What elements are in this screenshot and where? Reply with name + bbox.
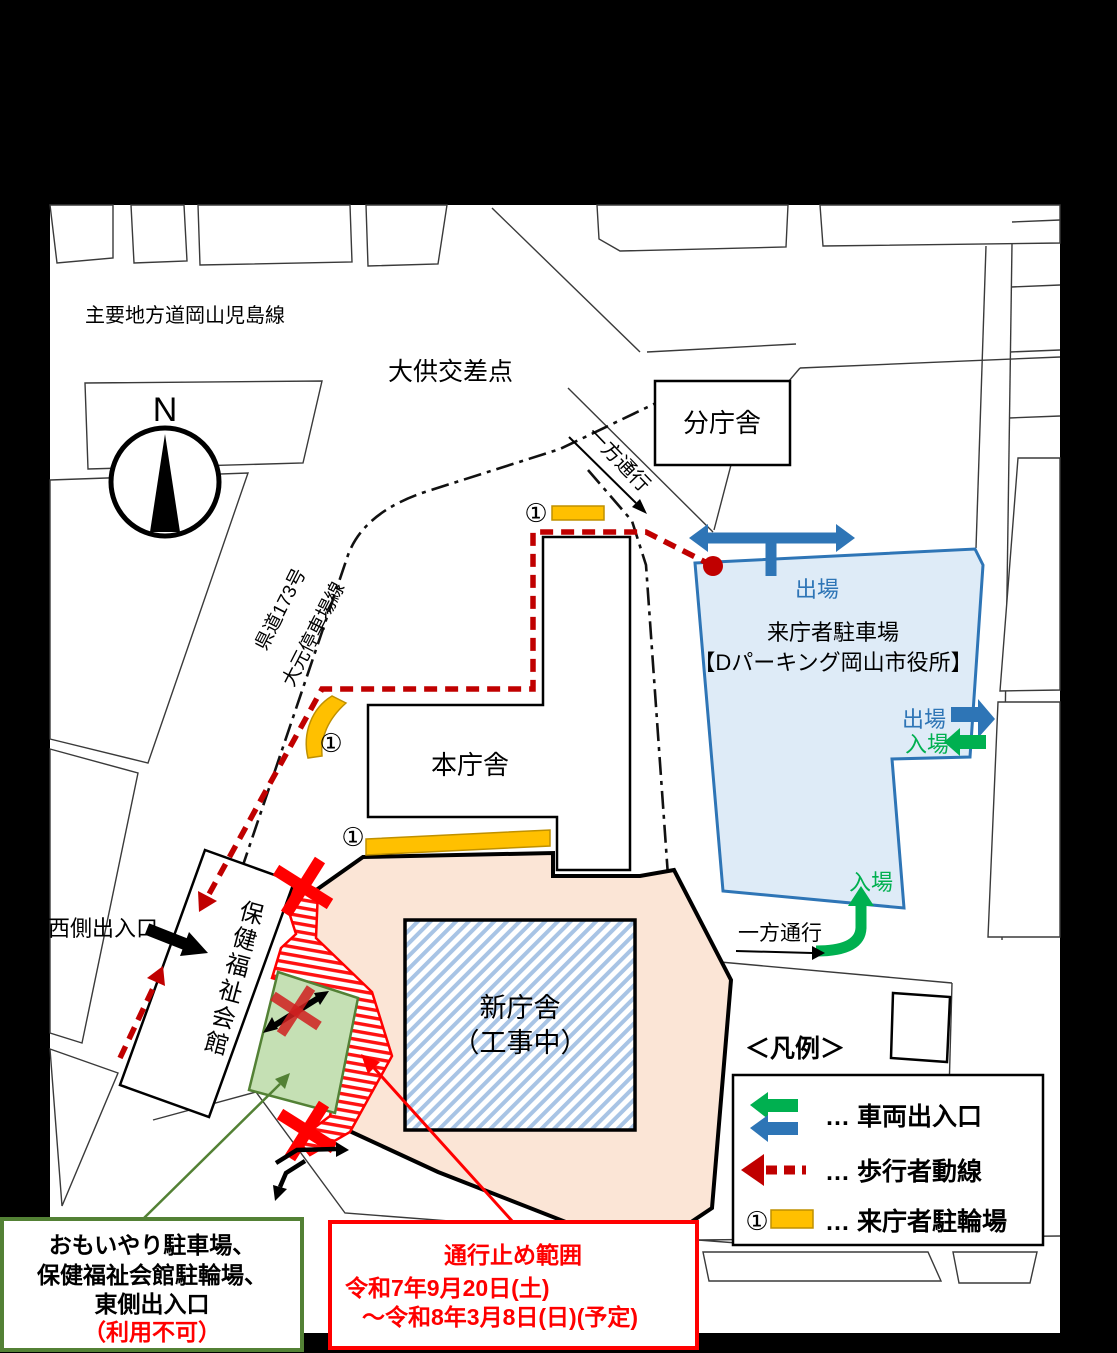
main-road-label: 主要地方道岡山児島線 xyxy=(85,304,285,327)
road-line xyxy=(597,205,788,251)
legend-title: ＜凡例＞ xyxy=(745,1035,845,1063)
construction-notice-map: 主要地方道岡山児島線 大供交差点 県道173号 大元停車場線 N 分庁舎 一方通… xyxy=(0,0,1117,1353)
callout-closure-line3: ～令和8年3月8日(日)(予定) xyxy=(362,1304,638,1330)
road-line xyxy=(953,1252,1037,1283)
enter-bottom-label: 入場 xyxy=(849,870,893,895)
parking-name-line1: 来庁者駐車場 xyxy=(767,620,899,645)
parking-name-line2: 【Dパーキング岡山市役所】 xyxy=(693,650,972,675)
main-building-label: 本庁舎 xyxy=(431,750,509,780)
new-building-label-2: （工事中） xyxy=(453,1028,588,1058)
intersection-label: 大供交差点 xyxy=(388,358,513,386)
blue-arrow-icon xyxy=(768,1122,798,1135)
road-line xyxy=(198,205,352,265)
enter-right-arrow-shaft xyxy=(960,735,986,749)
pedestrian-route-start-dot xyxy=(703,556,723,576)
exit-right-label: 出場 xyxy=(902,707,946,732)
bicycle-marker-left: ① xyxy=(319,728,342,758)
new-building xyxy=(405,920,635,1130)
road-line xyxy=(988,702,1060,937)
bicycle-marker-mid: ① xyxy=(341,822,364,852)
bicycle-marker-top: ① xyxy=(524,498,547,528)
small-building xyxy=(891,993,950,1062)
legend-bicycle-marker: ① xyxy=(745,1206,768,1236)
road-line xyxy=(131,205,187,263)
road-line xyxy=(703,1252,941,1281)
yellow-bar-icon xyxy=(771,1210,813,1228)
enter-right-label: 入場 xyxy=(905,732,949,757)
bicycle-parking-bar-top xyxy=(552,506,604,520)
callout-unavailable-line1: おもいやり駐車場、 xyxy=(49,1232,256,1258)
callout-unavailable: おもいやり駐車場、 保健福祉会館駐輪場、 東側出入口 （利用不可） xyxy=(2,1219,302,1350)
road-line xyxy=(366,205,447,266)
exit-right-arrow-shaft xyxy=(951,707,978,722)
new-building-label-1: 新庁舎 xyxy=(480,993,561,1023)
callout-unavailable-line2: 保健福祉会館駐輪場、 xyxy=(36,1262,267,1288)
west-entrance-label: 西側出入口 xyxy=(48,916,158,941)
road-line xyxy=(820,205,1060,246)
legend-bicycle-label: … 来庁者駐輪場 xyxy=(825,1207,1007,1236)
callout-unavailable-line3: 東側出入口 xyxy=(95,1291,210,1317)
road-line xyxy=(50,205,113,263)
callout-closure-line1: 通行止め範囲 xyxy=(444,1242,582,1268)
callout-closure-line2: 令和7年9月20日(土) xyxy=(345,1275,549,1301)
legend-vehicle-label: … 車両出入口 xyxy=(825,1103,982,1131)
callout-unavailable-line4: （利用不可） xyxy=(83,1319,221,1345)
compass-n-label: N xyxy=(153,391,178,429)
one-way-bottom-label: 一方通行 xyxy=(738,922,822,945)
green-arrow-icon xyxy=(768,1099,798,1112)
branch-building-label: 分庁舎 xyxy=(683,408,761,438)
map-svg: 主要地方道岡山児島線 大供交差点 県道173号 大元停車場線 N 分庁舎 一方通… xyxy=(0,0,1117,1353)
callout-closure: 通行止め範囲 令和7年9月20日(土) ～令和8年3月8日(日)(予定) xyxy=(330,1222,697,1348)
legend-pedestrian-label: … 歩行者動線 xyxy=(825,1157,982,1186)
exit-top-label: 出場 xyxy=(795,577,839,602)
